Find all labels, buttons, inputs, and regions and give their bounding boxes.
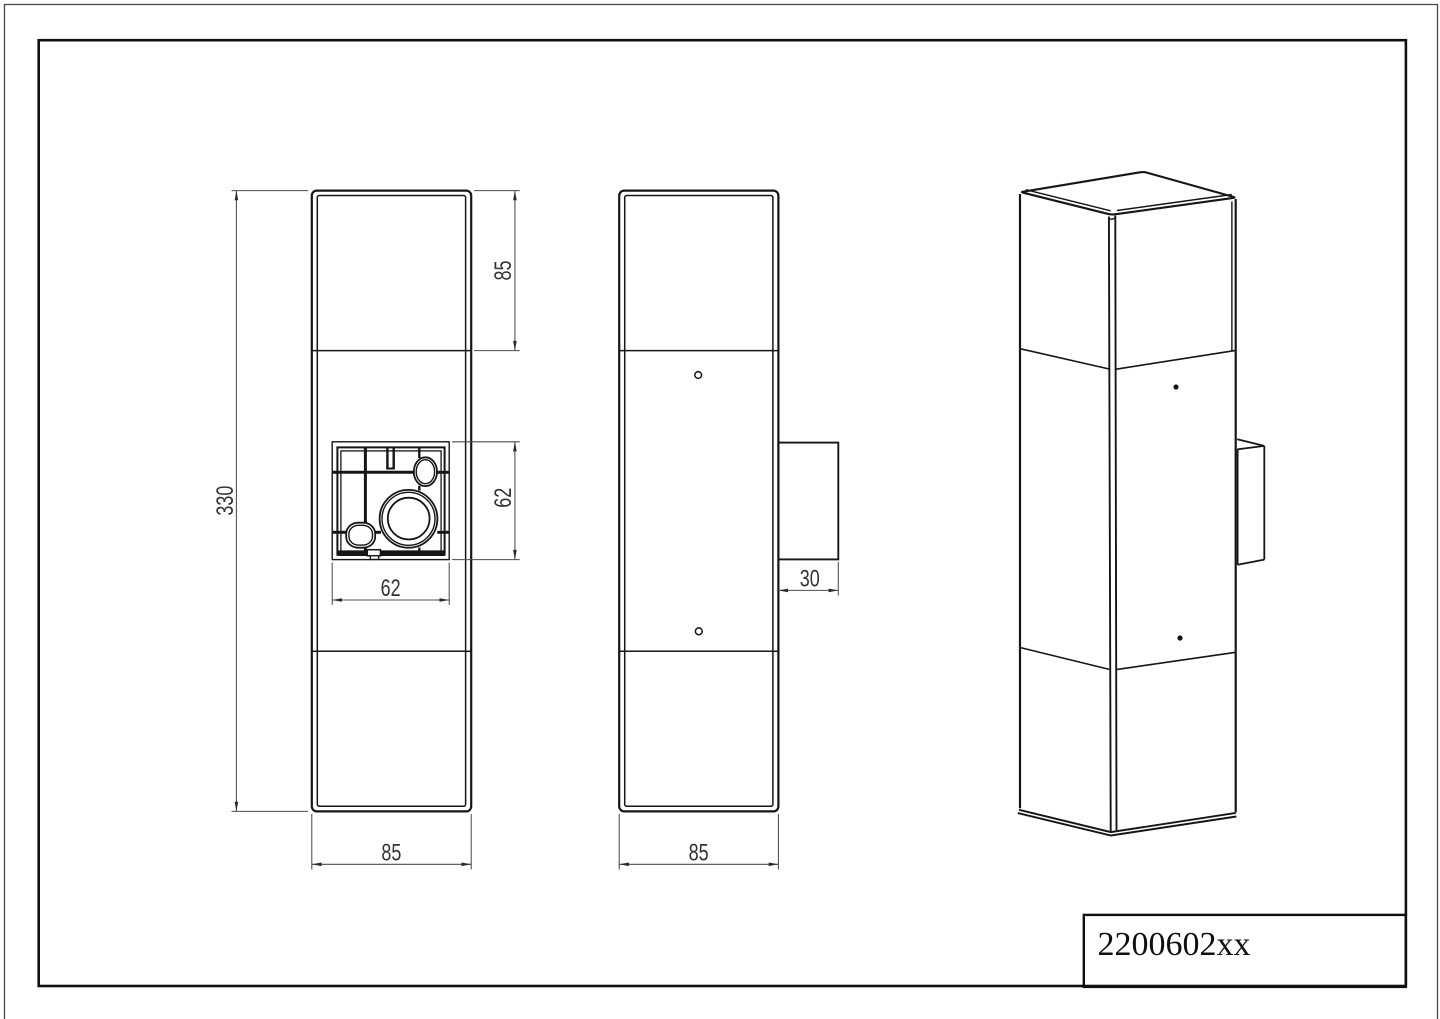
svg-text:30: 30 [800, 565, 820, 592]
svg-text:2200602xx: 2200602xx [1098, 926, 1251, 963]
svg-text:85: 85 [490, 261, 517, 281]
svg-text:85: 85 [689, 840, 709, 867]
svg-text:330: 330 [212, 486, 239, 516]
svg-text:62: 62 [490, 488, 517, 508]
svg-text:62: 62 [381, 575, 401, 602]
svg-text:85: 85 [381, 840, 401, 867]
